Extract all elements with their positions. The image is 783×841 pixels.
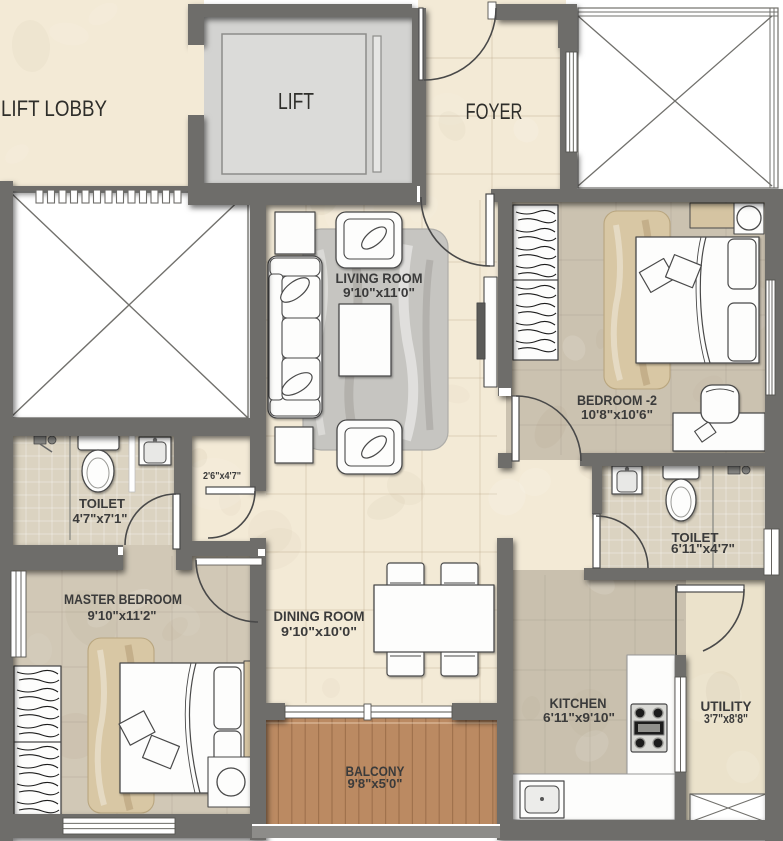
svg-text:9'10"x11'2": 9'10"x11'2" (88, 608, 157, 623)
svg-text:3'7"x8'8": 3'7"x8'8" (704, 711, 748, 726)
svg-text:KITCHEN: KITCHEN (550, 695, 607, 711)
svg-text:9'10"x11'0": 9'10"x11'0" (343, 285, 415, 300)
svg-text:TOILET: TOILET (79, 496, 125, 511)
svg-text:4'7"x7'1": 4'7"x7'1" (73, 512, 128, 526)
svg-text:6'11"x4'7": 6'11"x4'7" (671, 542, 735, 556)
svg-text:6'11"x9'10": 6'11"x9'10" (543, 710, 615, 725)
svg-text:FOYER: FOYER (466, 99, 523, 124)
svg-text:LIFT LOBBY: LIFT LOBBY (1, 96, 107, 121)
svg-text:LIVING ROOM: LIVING ROOM (336, 270, 423, 286)
svg-text:9'8"x5'0": 9'8"x5'0" (348, 776, 403, 791)
svg-text:2'6"x4'7": 2'6"x4'7" (203, 471, 241, 482)
svg-text:9'10"x10'0": 9'10"x10'0" (281, 624, 357, 639)
svg-text:10'8"x10'6": 10'8"x10'6" (581, 407, 653, 422)
svg-text:LIFT: LIFT (278, 88, 314, 114)
svg-text:DINING ROOM: DINING ROOM (274, 608, 365, 624)
svg-text:MASTER BEDROOM: MASTER BEDROOM (64, 591, 182, 607)
svg-text:BEDROOM -2: BEDROOM -2 (577, 392, 657, 408)
